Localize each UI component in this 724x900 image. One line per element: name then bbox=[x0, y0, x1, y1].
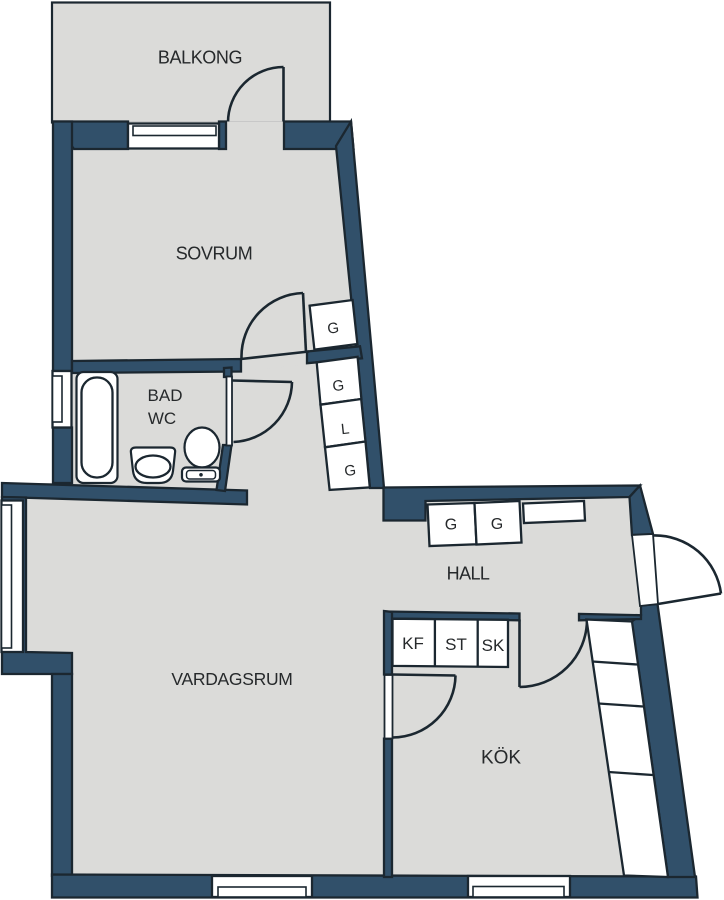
svg-text:ST: ST bbox=[445, 635, 467, 654]
svg-text:WC: WC bbox=[148, 409, 176, 428]
svg-text:SK: SK bbox=[482, 636, 505, 655]
svg-text:KF: KF bbox=[402, 634, 424, 653]
svg-text:G: G bbox=[326, 319, 339, 337]
svg-text:L: L bbox=[340, 420, 350, 438]
svg-text:KÖK: KÖK bbox=[481, 748, 521, 769]
svg-text:G: G bbox=[491, 516, 503, 533]
svg-text:HALL: HALL bbox=[447, 564, 490, 584]
svg-text:BALKONG: BALKONG bbox=[158, 48, 242, 68]
svg-text:VARDAGSRUM: VARDAGSRUM bbox=[171, 669, 292, 689]
svg-text:SOVRUM: SOVRUM bbox=[176, 244, 253, 264]
svg-text:BAD: BAD bbox=[148, 386, 183, 405]
svg-text:G: G bbox=[332, 377, 345, 395]
svg-text:G: G bbox=[445, 517, 457, 534]
svg-text:G: G bbox=[344, 462, 357, 480]
